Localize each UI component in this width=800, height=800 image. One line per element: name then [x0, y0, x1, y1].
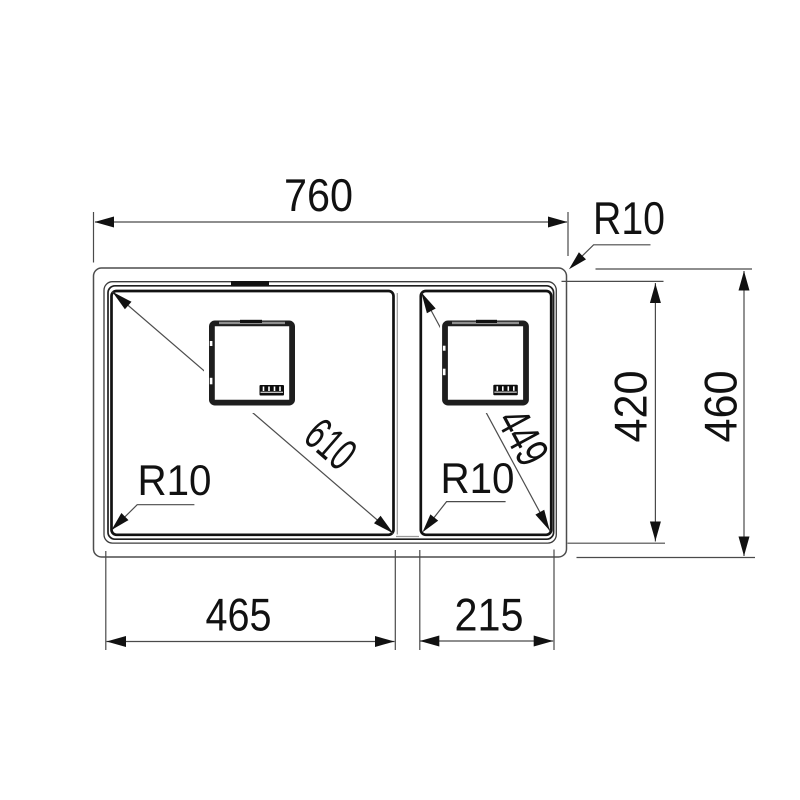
svg-text:465: 465: [205, 589, 271, 641]
svg-text:215: 215: [454, 589, 523, 641]
svg-text:R10: R10: [593, 192, 665, 244]
svg-text:760: 760: [284, 169, 353, 221]
svg-text:420: 420: [605, 371, 657, 443]
svg-text:R10: R10: [137, 457, 211, 505]
svg-text:R10: R10: [440, 455, 514, 503]
svg-text:460: 460: [695, 371, 747, 443]
